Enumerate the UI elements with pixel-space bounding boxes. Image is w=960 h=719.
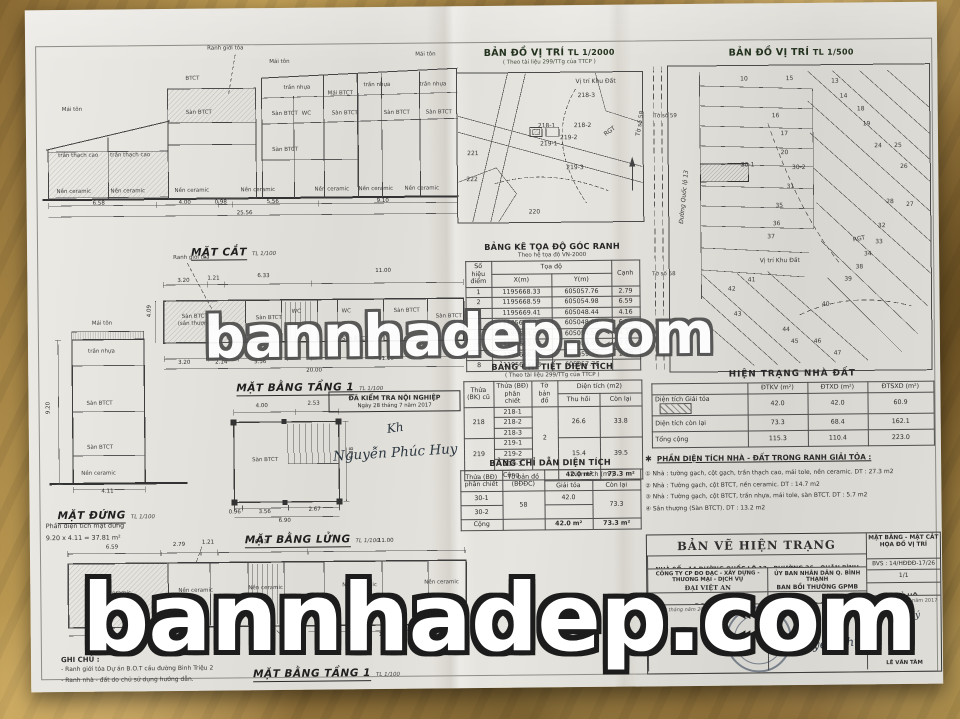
map-2000-subtitle: ( Theo tài liệu 299/TTg của TTCP ) [453, 58, 645, 66]
parcel-label: 35 [775, 203, 783, 209]
parcel-label: 218-3 [578, 93, 595, 99]
parcel-label: 33 [875, 239, 883, 245]
sheet-title: BẢN VẼ HIỆN TRẠNG [677, 538, 836, 554]
parcel-label: 14 [840, 94, 848, 100]
dimension-label: 11.00 [375, 269, 391, 275]
hientrang-table: ĐTKV (m²)ĐTXD (m²)ĐTSXD (m²) Diện tích G… [651, 381, 935, 449]
parcel-label: Vị trí Khu Đất [760, 258, 800, 264]
parcel-label: 221 [467, 151, 479, 157]
dimension-label: 4.00 [256, 404, 268, 410]
dimension-label: 6.90 [279, 519, 291, 525]
dimension-label: 9.20 [47, 402, 53, 414]
hientrang-col-header: ĐTXD (m²) [807, 382, 867, 393]
parcel-label: 219-2 [560, 135, 577, 141]
parcel-label: 25 [894, 143, 902, 149]
hientrang-col-header: ĐTKV (m²) [747, 382, 807, 393]
parcel-label: 42 [728, 287, 736, 293]
elevation-caption-1: Phần diện tích mặt đứng [46, 521, 125, 530]
parcel-label: 43 [734, 312, 742, 318]
titleblock-title-cell: BẢN VẼ HIỆN TRẠNG [647, 533, 866, 555]
hientrang-row-label: Diện tích Giải tỏa [655, 395, 710, 403]
parcel-label: 30-1 [741, 163, 755, 169]
parcel-label: 47 [834, 351, 842, 357]
parcel-label: 19 [863, 121, 871, 127]
dimension-label: 4.00 [179, 201, 191, 207]
parcel-label: 27 [906, 201, 914, 207]
parcel-label: 219-1 [540, 141, 557, 147]
parcel-label: 44 [782, 327, 790, 333]
watermark-bottom: bannhadep.com [82, 572, 916, 666]
star-icon: ✱ [645, 454, 652, 463]
map-2000-parcels: Vị trí Khu Đất218-3218-1218-2219-1219-22… [455, 70, 644, 224]
section-mat-cat: Ranh giới tỏa Mái tônMái tônMái tônBTCTt… [39, 46, 461, 264]
chidan-title: BẢNG CHỈ DẪN DIỆN TÍCH [451, 456, 649, 468]
dimension-label: 1.21 [202, 541, 214, 547]
to-so-59-label: Tờ số 59 [653, 114, 677, 120]
parcel-label: 220 [529, 209, 541, 215]
parcel-label: 28 [886, 199, 894, 205]
parcel-label: 218-1 [538, 123, 555, 129]
dimension-label: 2.53 [308, 402, 320, 408]
watermark-center: bannhadep.com [204, 304, 714, 367]
parcel-label: Vị trí Khu Đất [575, 79, 615, 85]
parcel-label: 16 [772, 113, 780, 119]
dimension-label: 6.33 [257, 274, 269, 280]
map-2000-canvas: Vị trí Khu Đất218-3218-1218-2219-1219-22… [455, 70, 644, 224]
parcel-label: RGT [853, 235, 866, 243]
toado-header-row1: Số hiệu điểm Tọa độ Cạnh [465, 260, 639, 274]
parcel-label: 41 [748, 277, 756, 283]
toado-title: BẢNG KÊ TỌA ĐỘ GÓC RANH [459, 240, 645, 252]
dimension-label: 3.56 [259, 510, 271, 516]
dimension-label: 11.00 [378, 539, 394, 545]
dimension-label: 9.10 [377, 199, 389, 205]
dimension-label: 6.58 [93, 202, 105, 208]
check-stamp-box: ĐÃ KIỂM TRA NỘI NGHIỆP Ngày 28 tháng 7 n… [328, 390, 460, 412]
parcel-label: 36 [773, 221, 781, 227]
photo-scene: Ranh giới tỏa Mái tônMái tônMái tônBTCTt… [0, 0, 960, 719]
ghi-chu-item: - Ranh nhà - đất do chủ sử dụng hướng dẫ… [61, 673, 301, 687]
parcel-label: 17 [780, 131, 788, 137]
parcel-label: 10 [740, 76, 748, 82]
sheet-type-cell: MẶT BẰNG - MẶT CẮT HỌA ĐỒ VỊ TRÍ [866, 533, 940, 559]
parcel-label: 37 [767, 234, 775, 240]
dimension-label: 2.67 [309, 508, 321, 514]
section-hientrang-table: HIỆN TRẠNG NHÀ ĐẤT ĐTKV (m²)ĐTXD (m²)ĐTS… [646, 368, 939, 449]
parcel-label: 45 [791, 339, 799, 345]
parcel-label: RGT [603, 126, 616, 138]
chitiet-subtitle: ( Theo tài liệu 299/TTg của TTCP ) [456, 371, 648, 379]
parcel-label: 20 [781, 150, 789, 156]
parcel-label: 15 [786, 76, 794, 82]
map-500-title: BẢN ĐỒ VỊ TRÍ TL 1/500 [647, 46, 935, 60]
check-signature-name: Nguyễn Phúc Huy [333, 441, 458, 465]
elevation-title: MẶT ĐỨNG TL 1/100 [57, 503, 155, 523]
dimension-label: 2.79 [173, 543, 185, 549]
phan-dientich-notes: ① Nhà : tường gạch, cột gạch, trần thạch… [645, 466, 941, 516]
parcel-label: 219-3 [566, 165, 583, 171]
parcel-label: 18 [857, 106, 865, 112]
toado-subtitle: Theo hệ tọa độ VN-2000 [459, 251, 645, 259]
parcel-label: 222 [466, 177, 478, 183]
parcel-label: 218-2 [574, 123, 591, 129]
section-mat-dung: Mái tôntrần nhựaSàn BTCTSàn BTCTNền cera… [42, 321, 194, 554]
check-stamp-line2: Ngày 28 tháng 7 năm 2017 [332, 402, 458, 409]
map-2000-title: BẢN ĐỒ VỊ TRÍ TL 1/2000 [453, 46, 645, 59]
dimension-label: 1.21 [207, 277, 219, 283]
parcel-label: 13 [831, 78, 839, 84]
chidan-table: Thửa (BĐ) phân chiết Tờ bản đồ (BĐĐC) Di… [460, 469, 642, 531]
parcel-label: 38 [856, 264, 864, 270]
parcel-label: 34 [864, 251, 872, 257]
dimension-label: 25.56 [237, 211, 253, 217]
dimension-label: 6.33 [255, 540, 267, 546]
dimension-label: 5.56 [267, 200, 279, 206]
dimension-label: 4.11 [101, 490, 113, 496]
hientrang-col-header: ĐTSXD (m²) [867, 381, 933, 392]
parcel-label: 46 [814, 339, 822, 345]
parcel-label: 30-2 [792, 165, 806, 171]
parcel-label: 24 [874, 143, 882, 149]
dimension-label: 3.20 [177, 279, 189, 285]
to-so-58-label: Tờ số 58 [652, 272, 676, 278]
parcel-label: 31 [787, 184, 795, 190]
hientrang-title: HIỆN TRẠNG NHÀ ĐẤT [646, 368, 938, 381]
dimension-label: 0.96 [229, 510, 241, 516]
dimension-label: 6.59 [106, 546, 118, 552]
dimension-label: 0.98 [215, 200, 227, 206]
hatch-legend-swatch [659, 403, 691, 414]
check-stamp-line1: ĐÃ KIỂM TRA NỘI NGHIỆP [331, 393, 457, 402]
parcel-label: 39 [844, 276, 852, 282]
section-chidan-table: BẢNG CHỈ DẪN DIỆN TÍCH Thửa (BĐ) phân ch… [451, 456, 650, 531]
section-map-2000: BẢN ĐỒ VỊ TRÍ TL 1/2000 ( Theo tài liệu … [453, 46, 647, 240]
parcel-label: 26 [900, 164, 908, 170]
phan-dientich-heading: ✱ PHẦN DIỆN TÍCH NHÀ - ĐẤT TRONG RANH GI… [645, 444, 941, 466]
parcel-label: 32 [878, 223, 886, 229]
parcel-label: Tờ số 58 [636, 110, 646, 136]
mat-cat-dims: 6.584.000.985.569.1025.56 [39, 46, 461, 264]
parcel-label: 40 [822, 301, 830, 307]
section-phan-dientich: ✱ PHẦN DIỆN TÍCH NHÀ - ĐẤT TRONG RANH GI… [645, 444, 942, 516]
check-initial-signature: Kh [386, 420, 405, 436]
dimension-label: 4.09 [148, 305, 154, 317]
